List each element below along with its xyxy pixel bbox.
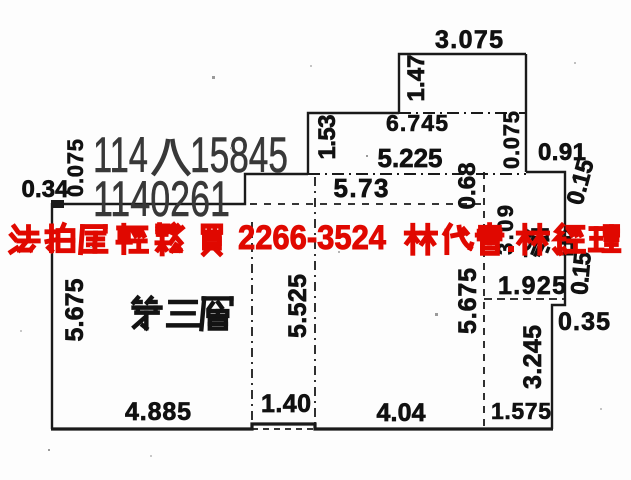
svg-text:3.245: 3.245 — [519, 325, 547, 389]
svg-text:1140261: 1140261 — [93, 171, 230, 227]
svg-text:4.885: 4.885 — [125, 398, 191, 426]
svg-text:4.04: 4.04 — [377, 399, 426, 427]
svg-text:0.35: 0.35 — [558, 308, 610, 336]
svg-text:0.15: 0.15 — [566, 251, 597, 296]
svg-text:2266-3524: 2266-3524 — [238, 219, 386, 257]
svg-text:5.525: 5.525 — [284, 274, 312, 338]
svg-text:5.73: 5.73 — [334, 173, 389, 203]
svg-text:0.34: 0.34 — [22, 176, 70, 203]
svg-text:1.925: 1.925 — [498, 272, 566, 300]
svg-text:6.745: 6.745 — [386, 110, 448, 136]
svg-text:1.47: 1.47 — [403, 55, 430, 102]
svg-text:0.68: 0.68 — [454, 163, 481, 210]
svg-text:5.675: 5.675 — [61, 278, 89, 341]
svg-text:5.675: 5.675 — [454, 268, 482, 334]
svg-text:1.575: 1.575 — [491, 398, 551, 424]
svg-text:0.075: 0.075 — [499, 111, 524, 169]
svg-text:5.225: 5.225 — [378, 143, 443, 173]
svg-text:1.53: 1.53 — [314, 115, 341, 160]
svg-text:1.40: 1.40 — [261, 390, 311, 418]
svg-text:3.075: 3.075 — [435, 26, 503, 54]
